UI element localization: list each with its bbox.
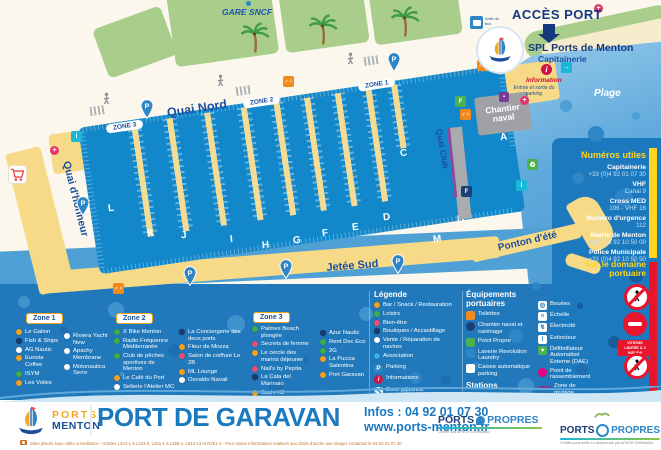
port-domain-title: Sur le domaine portuaire [560,260,646,279]
equipment-item: Point Propre [466,338,540,347]
equipment-item: Extincteur [538,335,596,344]
business-item: Palmes Beach plongée [252,326,314,339]
pier [361,88,392,203]
information-label: Information [526,77,562,84]
pier-letter: C [399,148,408,160]
category-dot [374,302,380,308]
category-dot [374,353,380,359]
equipment-item: Échelle [538,312,596,321]
pedestrian-icon [344,52,357,65]
legend-extra-icon [374,364,383,373]
phone-entry: Cross MED 196 - VHF 16 [560,198,646,212]
business-item: X Bike Menton [114,329,176,336]
bus-stop-label: Arrêt de bus [485,17,505,26]
useful-numbers-list: Capitainerie +33 (0)4 92 01 07 30 VHF Ca… [560,164,646,263]
equipment-title: Équipements portuaires [466,290,540,308]
phone-entry-label: Cross MED [560,198,646,205]
category-dot [252,326,258,332]
ports-propres-logo-1: PORTS PROPRES Certifié par AFNOR Certifi… [438,414,542,434]
no-littering-sign [624,353,650,379]
divider [462,291,463,393]
equipment-icon [538,346,547,355]
category-dot [179,377,185,383]
pedestrian-icon [100,92,113,105]
pier [300,97,331,212]
pier-letter: F [321,228,328,240]
pp1-pin-icon [476,416,485,425]
equipment-label: Laverie Revolution Laundry [478,349,540,362]
phone-entry-value: +33 (0)4 92 10 50 00 [560,239,646,246]
legend-item-label: Boutiques / Accastillage [383,328,445,335]
palm-tree-icon [308,14,340,46]
legend-item: Association [374,353,460,360]
business-label: La Conciergerie des deux ports [188,329,241,342]
category-dot [320,372,326,378]
phone-entry-value: Canal 9 [560,188,646,195]
equipment-label: Caisse automatique parking [478,364,540,377]
business-label: ML Lounge [188,369,217,376]
shop-cart-icon [9,166,26,183]
pier [127,123,158,238]
business-label: 2G [329,348,337,355]
business-item: Rent Dec Eco [320,339,366,346]
category-dot [16,347,22,353]
pp1-ports: PORTS [438,414,474,426]
brand-menton: MENTON [52,420,100,432]
business-item: Radio Fréquence Méditerranée [114,338,176,351]
wave-decoration [0,386,661,402]
legend-item: Bar / Snack / Restauration [374,302,460,309]
info-point-icon: i [516,180,527,191]
legend-item: Boutiques / Accastillage [374,328,460,335]
business-label: Riviera Yacht New [73,333,110,346]
legend-extra-item: Informations [374,375,460,384]
zone3-list-b: Azur Nautic Rent Dec Eco 2G La Puccia Sa… [320,330,366,381]
parking-pin-icon [75,196,91,216]
accent-bar-yellow [649,148,657,258]
business-label: Osvaldo Navali [188,377,228,384]
parking-cash-icon: ▪ [499,92,509,102]
palm-tree-icon [240,22,272,54]
business-item: Le Galion [16,329,62,336]
business-label: Apachy Membrane [73,348,110,361]
equipment-item: Toilettes [466,311,540,320]
category-dot [16,371,22,377]
category-dot [179,353,185,359]
equipment-icon [466,349,475,358]
business-item: ML Lounge [179,369,241,376]
pier [269,101,300,216]
crosswalk [235,85,251,96]
divider [90,405,92,435]
business-label: Fleur de Mozza [188,344,229,351]
business-item: Osvaldo Navali [179,377,241,384]
legend-extra-label: Informations [386,375,418,382]
business-label: Salon de coiffure Le 2B [188,353,241,366]
pier-letter: E [351,222,359,234]
category-dot [252,374,258,380]
equipment-icon [538,335,547,344]
phone-entry: Capitainerie +33 (0)4 92 01 07 30 [560,164,646,178]
sea-blobs [18,296,30,308]
business-item: Club de pêches sportives de Menton [114,353,176,373]
business-item: Salon de coiffure Le 2B [179,353,241,366]
parking-entrance-icon: → [561,62,572,73]
pier-letter: J [180,230,187,242]
business-label: Le Galion [25,329,50,336]
pier [387,84,410,149]
category-dot [320,348,326,354]
phone-entry-value: 112 [560,222,646,229]
category-dot [114,329,120,335]
business-label: Nail's by Pepita [261,366,301,373]
zone2-list-a: X Bike Menton Radio Fréquence Méditerran… [114,329,176,393]
pp2-ports: PORTS [560,425,594,436]
category-dot [252,366,258,372]
zone2-list-b: La Conciergerie des deux ports Fleur de … [179,329,241,386]
legend-section: Légende Bar / Snack / Restauration Loisi… [374,290,460,398]
business-item: AG Nautic [16,347,62,354]
business-item: La Puccia Salentina [320,356,366,369]
business-item: Azur Nautic [320,330,366,337]
legend-item-label: Vente / Réparation de navires [383,337,460,350]
category-dot [252,341,258,347]
crosswalk [89,105,105,116]
equipment-icon [538,323,547,332]
pier-letter: A [499,132,508,144]
business-item: Port Garavan [320,372,366,379]
bird-icon [594,411,610,419]
spl-ports-label: SPL Ports de Menton [528,42,633,54]
legend-item-label: Association [383,353,413,360]
camera-icon [20,440,27,445]
bus-stop-icon [470,16,483,29]
business-label: Azur Nautic [329,330,359,337]
legend-item: Loisirs [374,311,460,318]
first-aid-icon: + [50,146,59,155]
business-item: Le cercle des marins déjeuner [252,350,314,363]
page-title: PORT DE GARAVAN [97,402,340,433]
business-label: Motonautica Serre [73,364,110,377]
parking-pin-icon [139,99,155,119]
sea-blobs [560,100,572,112]
business-item: Fleur de Mozza [179,344,241,351]
business-item: Le Café du Port [114,375,176,382]
category-dot [16,338,22,344]
phone-entry-label: Numéro d'urgence [560,215,646,222]
spl-logo [478,28,522,72]
pier-letter: M [432,234,442,246]
category-dot [114,353,120,359]
equipment-item: Caisse automatique parking [466,364,540,377]
ports-propres-logo-2: PORTS PROPRES Certifié ports actifs en b… [560,406,660,445]
equipment-label: Défibrillateur Automatisé Externe (DAE) [550,346,596,366]
business-label: La Puccia Salentina [329,356,366,369]
pier-letter: L [107,203,114,215]
business-label: AG Nautic [25,347,52,354]
category-dot [374,337,380,343]
business-item: Eunoia Coffee [16,355,62,368]
phone-entry-value: +33 (0)4 92 01 07 30 [560,171,646,178]
no-entry-sign [623,312,647,336]
phone-entry-label: Police Municipale [560,249,646,256]
parking-pin-icon [182,266,198,286]
business-item: Apachy Membrane [64,348,110,361]
plage-label: Plage [594,88,621,99]
legend-categories: Bar / Snack / Restauration Loisirs Bien-… [374,302,460,359]
category-dot [64,348,70,354]
equipment-label: Électricité [550,323,576,330]
category-dot [64,333,70,339]
equipment-icon [538,301,547,310]
zone1-list-a: Le Galion Fish & Ships AG Nautic Eunoia … [16,329,62,388]
zone1-list-b: Riviera Yacht New Apachy Membrane Motona… [64,333,110,379]
ports-menton-logo-boat [14,404,48,438]
fuel-station-icon: F [455,96,466,107]
category-dot [252,350,258,356]
business-item: La Conciergerie des deux ports [179,329,241,342]
business-label: Secrets de femme [261,341,309,348]
park-area [92,5,177,78]
business-label: Eunoia Coffee [25,355,62,368]
equipment-label: Point de rassemblement [550,368,596,381]
parking-pin-icon [386,52,402,72]
phone-entry: Numéro d'urgence 112 [560,215,646,229]
toilets-icon: ♂♀ [283,76,294,87]
equipment-icon [466,364,475,373]
useful-numbers: Numéros utiles Capitainerie +33 (0)4 92 … [560,150,646,266]
phone-entry-label: Mairie de Menton [560,232,646,239]
business-label: Le cercle des marins déjeuner [261,350,314,363]
phone-entry: Mairie de Menton +33 (0)4 92 10 50 00 [560,232,646,246]
category-dot [16,355,22,361]
parking-pin-icon [278,259,294,279]
pier [331,92,362,207]
pier-letter: G [292,235,301,247]
palm-tree-icon [390,6,422,38]
equipment-item: Point de rassemblement [538,368,596,381]
chantier-naval-label: naval [492,112,515,124]
pp1-propres: PROPRES [487,414,538,426]
category-dot [16,329,22,335]
category-dot [374,320,380,326]
category-dot [374,311,380,317]
phone-entry: VHF Canal 9 [560,181,646,195]
business-label: ISYM [25,371,39,378]
port-map-poster: P [0,0,661,450]
category-dot [114,375,120,381]
equipment-label: Extincteur [550,335,576,342]
surveillance-notice: Sites placés sous vidéo surveillance - A… [30,441,650,446]
zone1-pill: Zone 1 [26,313,63,324]
equipment-item: Défibrillateur Automatisé Externe (DAE) [538,346,596,366]
business-item: Motonautica Serre [64,364,110,377]
pier-letter: D [382,212,391,224]
legend-title: Légende [374,290,460,299]
legend-extra-item: Parking [374,364,460,373]
fuel-station-icon: F [461,186,472,197]
category-dot [179,344,185,350]
pp2-propres: PROPRES [611,425,660,436]
information-icon: i [541,64,552,75]
equipment-label: Échelle [550,312,569,319]
gare-sncf-label: GARE SNCF [222,7,272,17]
equipment-icon [466,322,475,331]
equipment-icon [466,311,475,320]
equipment-icon [538,312,547,321]
category-dot [179,369,185,375]
legend-extra-label: Parking [386,364,406,371]
category-dot [179,329,185,335]
acces-port-label: ACCÈS PORT [512,7,602,22]
useful-numbers-title: Numéros utiles [560,150,646,160]
pier [163,117,194,232]
gare-sncf-dot [246,1,251,6]
business-item: Fish & Ships [16,338,62,345]
accent-bar-red [649,262,657,397]
business-label: Fish & Ships [25,338,58,345]
pier [200,112,231,227]
pp1-sub: Certifié par AFNOR Certification [438,430,542,434]
category-dot [320,339,326,345]
phone-entry-value: 196 - VHF 16 [560,205,646,212]
equipment-label: Toilettes [478,311,500,318]
sailboat-icon [485,35,515,65]
pier-letter: H [261,240,270,252]
business-item: Riviera Yacht New [64,333,110,346]
equipment-label: Chantier naval et carénage [478,322,540,335]
equipment-label: Point Propre [478,338,511,345]
toilets-icon: ♂♀ [460,109,471,120]
business-label: Le Café du Port [123,375,164,382]
equipment-icon [466,338,475,347]
divider [369,291,370,393]
pier [237,106,268,221]
equipment-icon [538,368,547,377]
equipment-item: Électricité [538,323,596,332]
business-label: Club de pêches sportives de Menton [123,353,176,373]
legend-item-label: Bar / Snack / Restauration [383,302,452,309]
legend-extra-icon [374,375,383,384]
category-dot [16,380,22,386]
legend-item-label: Loisirs [383,311,400,318]
category-dot [64,364,70,370]
category-dot [114,338,120,344]
parking-pin-icon [390,254,406,274]
pp2-circle-icon [596,424,609,437]
equipment-label: Bouées [550,301,570,308]
access-arrow-icon [543,24,555,34]
business-label: Palmes Beach plongée [261,326,314,339]
equipment-left-list: Toilettes Chantier naval et carénage Poi… [466,311,540,377]
business-label: X Bike Menton [123,329,161,336]
pp2-underline [560,438,660,440]
business-label: Rent Dec Eco [329,339,365,346]
pp1-underline [438,427,542,429]
equipment-item: Laverie Revolution Laundry [466,349,540,362]
phone-entry-label: Capitainerie [560,164,646,171]
bus-glyph [473,20,481,26]
business-item: ISYM [16,371,62,378]
recycle-point-icon: ♻ [527,159,538,170]
business-item: Secrets de femme [252,341,314,348]
category-dot [320,330,326,336]
info-point-icon: i [71,131,82,142]
no-fishing-sign [624,284,650,310]
legend-item: Vente / Réparation de navires [374,337,460,350]
parking-entrance-label: Entrée et sortie du parking [512,86,556,98]
crosswalk [363,55,379,66]
business-item: Nail's by Pepita [252,366,314,373]
business-label: Port Garavan [329,372,364,379]
category-dot [320,356,326,362]
legend-item: Bien-être [374,320,460,327]
zone2-pill: Zone 2 [116,313,153,324]
toilets-icon: ♂♀ [113,283,124,294]
equipment-item: Bouées [538,301,596,310]
business-item: 2G [320,348,366,355]
equipment-item: Chantier naval et carénage [466,322,540,335]
phone-entry-label: VHF [560,181,646,188]
zone3-pill: Zone 3 [253,312,290,323]
pedestrian-icon [214,74,227,87]
business-label: Radio Fréquence Méditerranée [123,338,176,351]
legend-item-label: Bien-être [383,320,407,327]
pier-letter: K [146,228,155,240]
category-dot [374,328,380,334]
